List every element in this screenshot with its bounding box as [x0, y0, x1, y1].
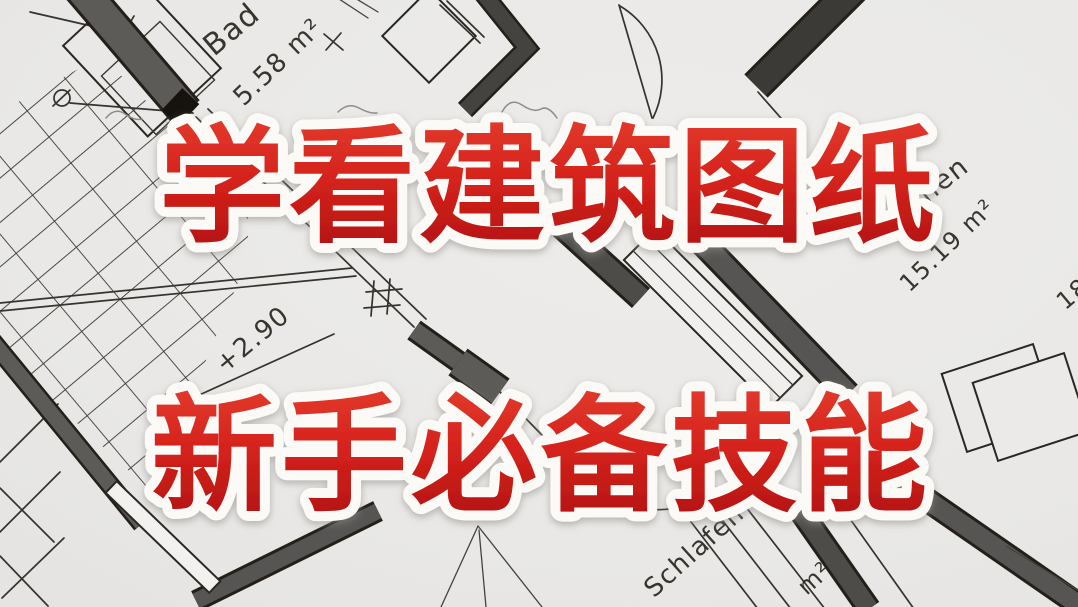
wall-end-cap	[172, 99, 189, 115]
video-thumbnail: Bad 5.58 m² Wohnen 15.19 m² +2.90 Schlaf…	[0, 0, 1078, 607]
floor-plan-background: Bad 5.58 m² Wohnen 15.19 m² +2.90 Schlaf…	[0, 0, 1078, 607]
headline-line-1: 学看建筑图纸	[159, 117, 939, 258]
headline-line-2: 新手必备技能	[151, 386, 931, 527]
